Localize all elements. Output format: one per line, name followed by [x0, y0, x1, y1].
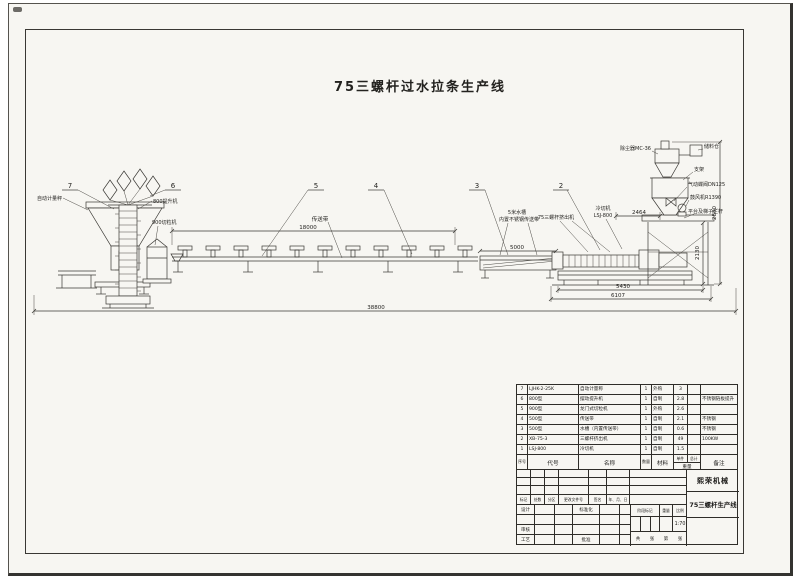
bom-cell-unit-weight: 2.6: [674, 405, 688, 415]
rev-col-mark: 标记: [517, 495, 531, 505]
bom-header-material: 材料: [652, 455, 674, 470]
bom-cell-total-weight: [688, 445, 701, 455]
rev-col-doc-no: 更改文件号: [559, 495, 589, 505]
bom-cell-name: 传送带: [579, 415, 641, 425]
rev-col-sign: 签名: [589, 495, 607, 505]
bom-cell-remark: 不锈钢: [701, 425, 737, 435]
bom-cell-seq: 5: [517, 405, 528, 415]
bom-header-qty: 数量: [641, 455, 652, 470]
title-block: 标记 处数 分区 更改文件号 签名 年、月、日 设计 标准化 审核 工艺 批准 …: [516, 469, 738, 545]
bom-cell-unit-weight: 3: [674, 385, 688, 395]
bom-cell-qty: 1: [641, 395, 652, 405]
bom-cell-qty: 1: [641, 445, 652, 455]
bom-cell-seq: 3: [517, 425, 528, 435]
bom-cell-qty: 1: [641, 415, 652, 425]
bom-cell-code: LSJ-800: [528, 445, 579, 455]
bom-cell-seq: 4: [517, 415, 528, 425]
weight-label: 重量: [660, 505, 673, 517]
bom-header-weight: 单件总计 重量: [674, 455, 701, 470]
bom-cell-code: 500型: [528, 425, 579, 435]
bom-cell-code: XB-75-3: [528, 435, 579, 445]
bom-cell-unit-weight: 2.1: [674, 415, 688, 425]
bom-cell-seq: 1: [517, 445, 528, 455]
bom-cell-name: 摆动提升机: [579, 395, 641, 405]
bom-header-seq: 序号: [517, 455, 528, 470]
title-block-right: 熙荣机械 75三螺杆生产线: [686, 470, 739, 546]
stage-mark-label: 阶段标记: [631, 505, 660, 517]
bom-header-total-weight: 总计: [688, 455, 701, 462]
bom-cell-seq: 7: [517, 385, 528, 395]
role-design: 设计: [517, 505, 535, 515]
bom-cell-unit-weight: 49: [674, 435, 688, 445]
roles-grid: 设计 标准化 审核 工艺 批准: [517, 505, 630, 546]
role-standard: 标准化: [573, 505, 600, 515]
bom-cell-material: 自制: [652, 425, 674, 435]
bom-cell-remark: 100KW: [701, 435, 737, 445]
rev-col-zone: 分区: [545, 495, 559, 505]
bom-cell-total-weight: [688, 435, 701, 445]
bom-cell-code: LJHK-2-25K: [528, 385, 579, 395]
bom-cell-qty: 1: [641, 405, 652, 415]
bom-cell-unit-weight: 1.5: [674, 445, 688, 455]
bom-cell-remark: [701, 445, 737, 455]
bom-cell-remark: [701, 405, 737, 415]
scan-corner-mark: [13, 7, 22, 12]
role-audit: 审核: [517, 525, 535, 535]
bom-cell-total-weight: [688, 415, 701, 425]
bom-cell-total-weight: [688, 395, 701, 405]
rev-col-count: 处数: [531, 495, 545, 505]
bom-cell-total-weight: [688, 405, 701, 415]
bom-cell-name: 水槽（内置传送带）: [579, 425, 641, 435]
revision-grid: 标记 处数 分区 更改文件号 签名 年、月、日: [517, 470, 686, 505]
scale-label: 比例: [673, 505, 687, 517]
bom-cell-material: 自制: [652, 435, 674, 445]
role-approve: 批准: [573, 535, 600, 545]
bom-cell-qty: 1: [641, 435, 652, 445]
bom-cell-code: 900型: [528, 405, 579, 415]
stage-scale-grid: 阶段标记 重量 比例 1:70 共 张 第 张: [630, 505, 687, 546]
bom-cell-material: 自制: [652, 395, 674, 405]
bom-cell-qty: 1: [641, 425, 652, 435]
bom-cell-material: 外购: [652, 385, 674, 395]
scale-value: 1:70: [673, 517, 687, 532]
bom-cell-remark: 不锈钢链板提升: [701, 395, 737, 405]
drawing-name: 75三螺杆生产线: [687, 492, 739, 518]
bom-cell-code: 800型: [528, 395, 579, 405]
bom-cell-total-weight: [688, 385, 701, 395]
role-process: 工艺: [517, 535, 535, 545]
bom-cell-total-weight: [688, 425, 701, 435]
bom-cell-name: 三螺杆挤出机: [579, 435, 641, 445]
bom-cell-seq: 2: [517, 435, 528, 445]
bom-header-name: 名称: [579, 455, 641, 470]
bom-cell-code: 500型: [528, 415, 579, 425]
bom-cell-name: 自动计量称: [579, 385, 641, 395]
drawing-number-box: [687, 518, 739, 545]
bom-table: 7 LJHK-2-25K 自动计量称 1 外购 3 6 800型 摆动提升机 1…: [516, 384, 738, 470]
bom-header-code: 代号: [528, 455, 579, 470]
bom-cell-qty: 1: [641, 385, 652, 395]
bom-cell-unit-weight: 0.6: [674, 425, 688, 435]
bom-cell-seq: 6: [517, 395, 528, 405]
bom-cell-material: 自制: [652, 415, 674, 425]
bom-cell-remark: 不锈钢: [701, 415, 737, 425]
bom-cell-name: 龙门式切粒机: [579, 405, 641, 415]
bom-cell-remark: [701, 385, 737, 395]
bom-cell-material: 外购: [652, 405, 674, 415]
bom-header-remark: 备注: [701, 455, 737, 470]
bom-cell-material: 自制: [652, 445, 674, 455]
bom-cell-unit-weight: 2.8: [674, 395, 688, 405]
bom-header-unit-weight: 单件: [674, 455, 688, 462]
scanned-drawing-sheet: 75三螺杆过水拉条生产线: [0, 0, 800, 581]
main-title: 75三螺杆过水拉条生产线: [290, 76, 550, 95]
company-name: 熙荣机械: [687, 470, 739, 492]
bom-cell-name: 冷切机: [579, 445, 641, 455]
rev-col-date: 年、月、日: [607, 495, 630, 505]
sheet-count-row: 共 张 第 张: [631, 532, 687, 545]
